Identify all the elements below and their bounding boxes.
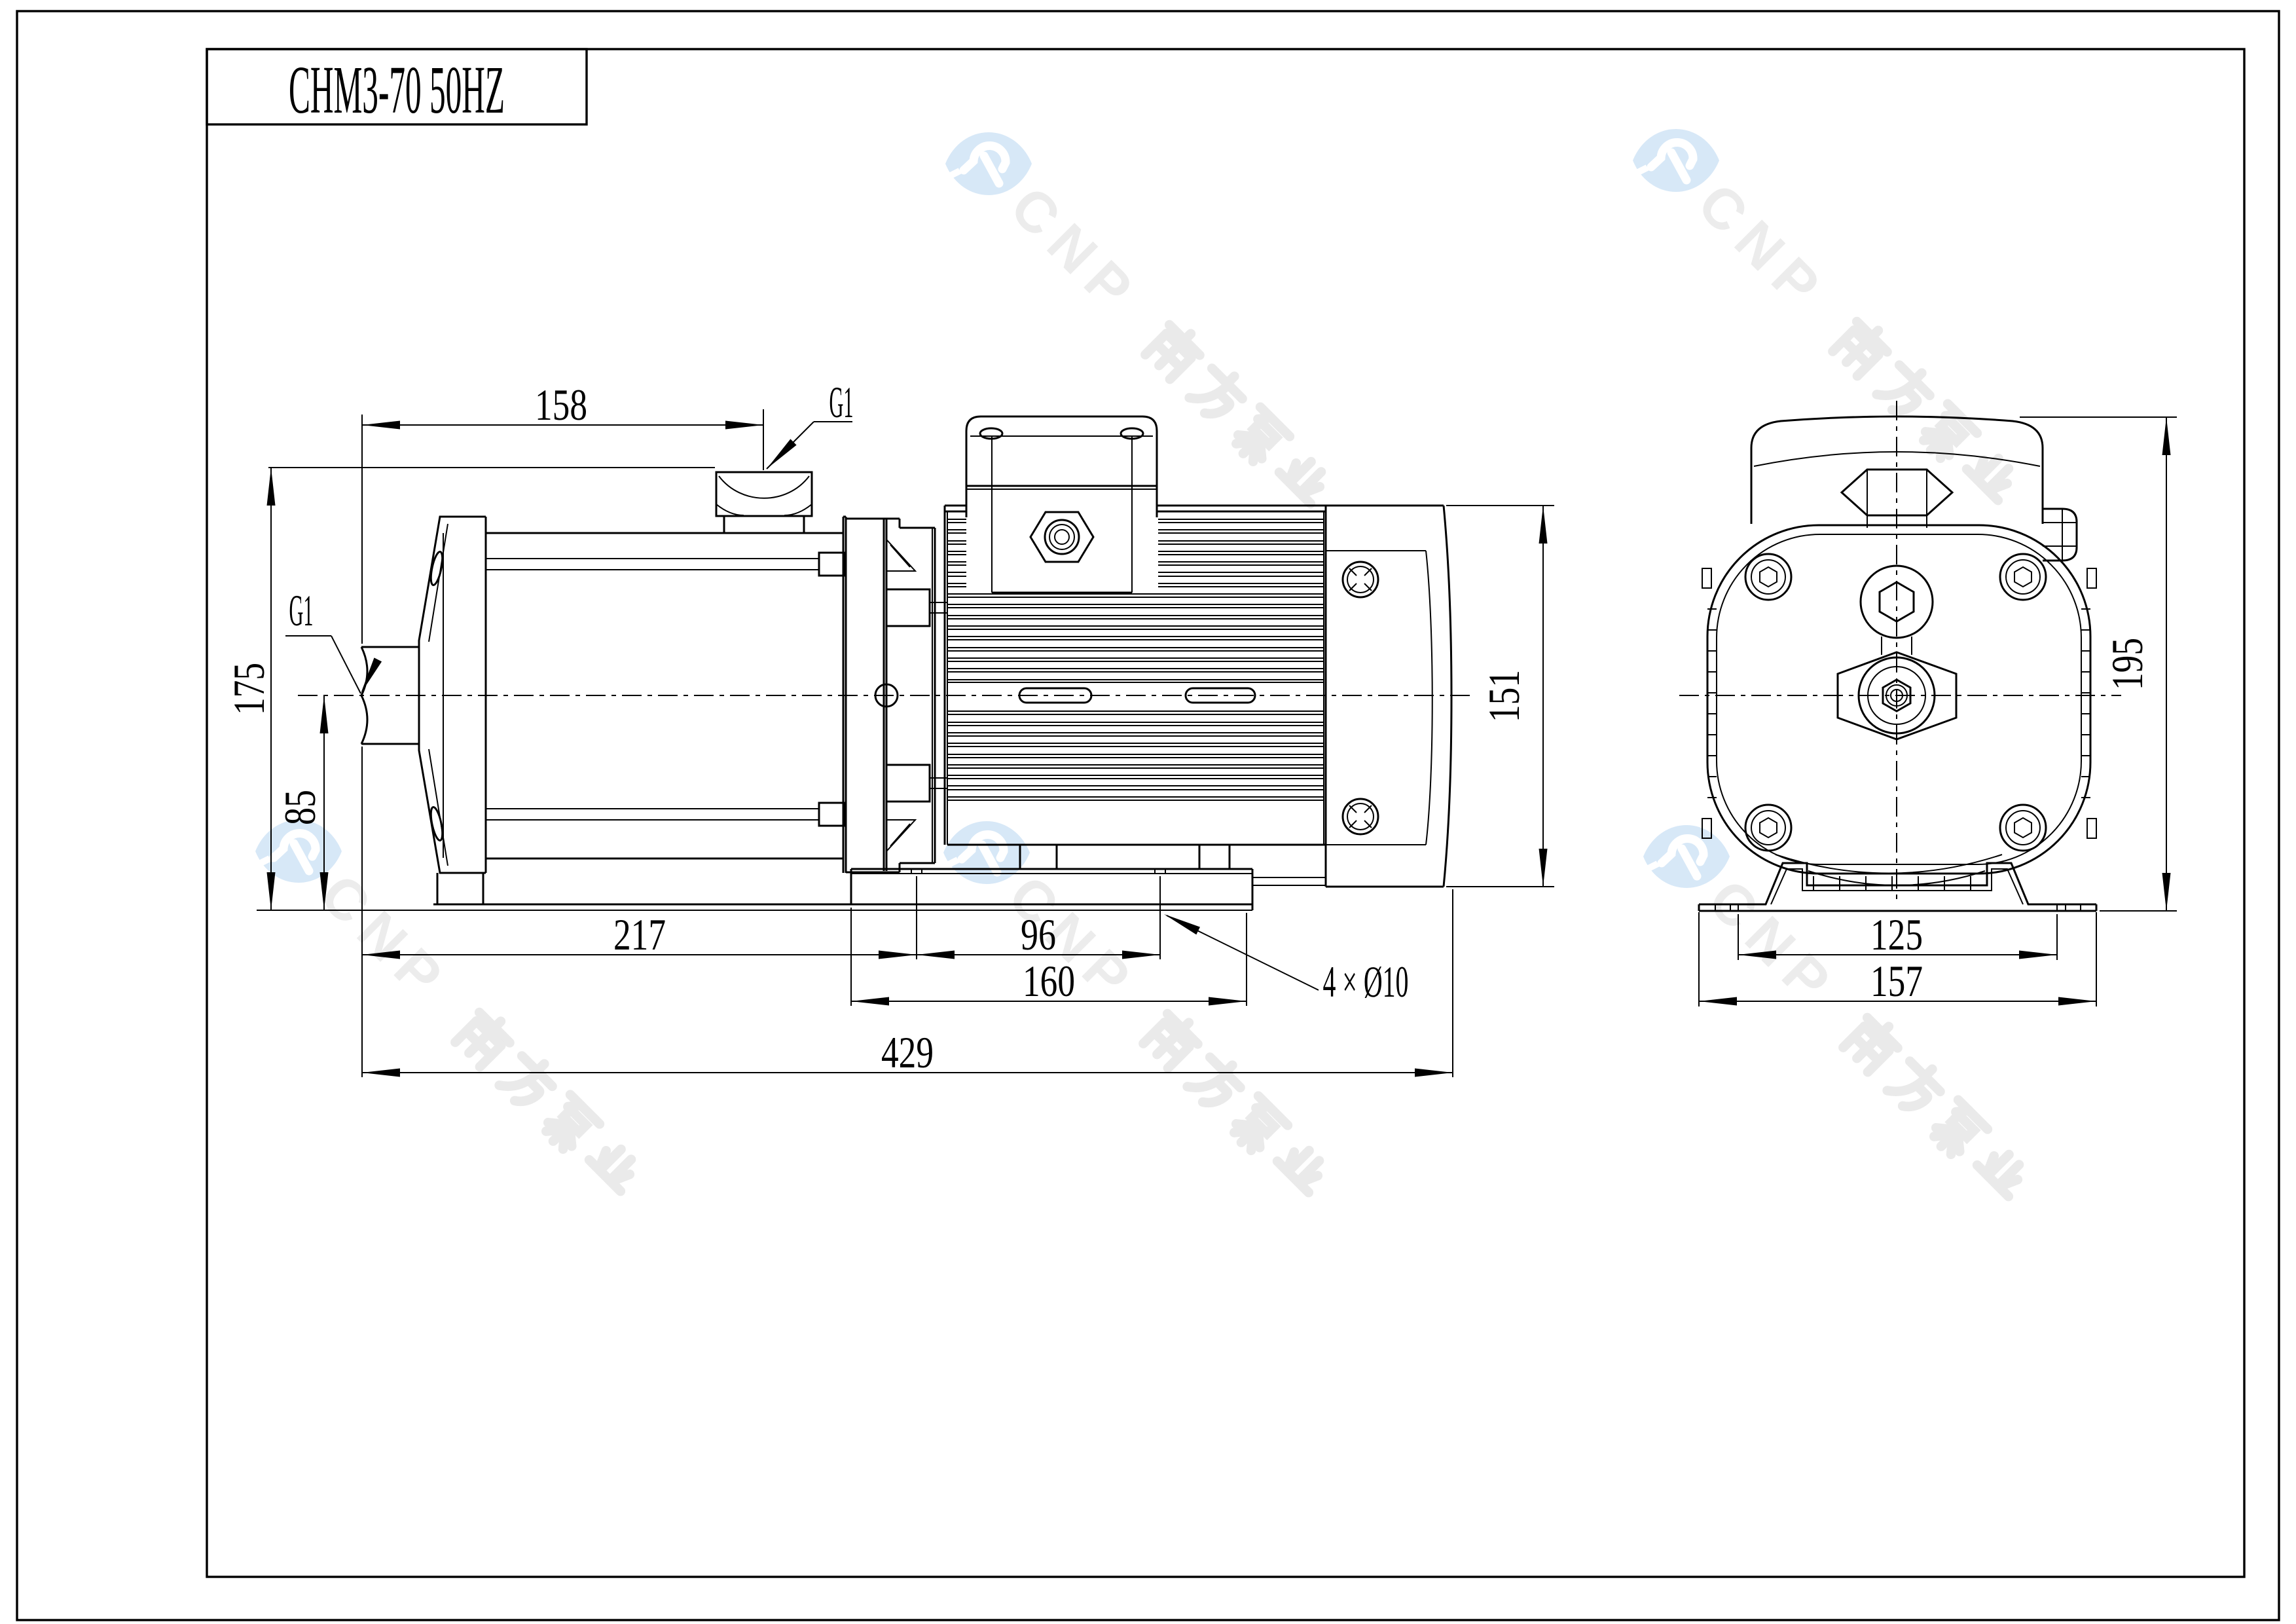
- svg-text:157: 157: [1870, 956, 1923, 1006]
- svg-text:217: 217: [613, 910, 666, 959]
- svg-text:125: 125: [1870, 910, 1923, 959]
- svg-text:G1: G1: [829, 377, 854, 427]
- svg-text:175: 175: [224, 663, 274, 715]
- svg-text:160: 160: [1023, 956, 1075, 1006]
- svg-text:158: 158: [535, 380, 587, 430]
- svg-text:85: 85: [275, 790, 325, 825]
- svg-text:195: 195: [2102, 638, 2152, 690]
- svg-text:151: 151: [1479, 670, 1529, 722]
- svg-text:429: 429: [881, 1027, 934, 1077]
- svg-text:4 × Ø10: 4 × Ø10: [1323, 957, 1409, 1006]
- svg-text:96: 96: [1021, 910, 1056, 959]
- svg-text:G1: G1: [289, 585, 314, 635]
- svg-text:CHM3-70 50HZ: CHM3-70 50HZ: [289, 52, 505, 128]
